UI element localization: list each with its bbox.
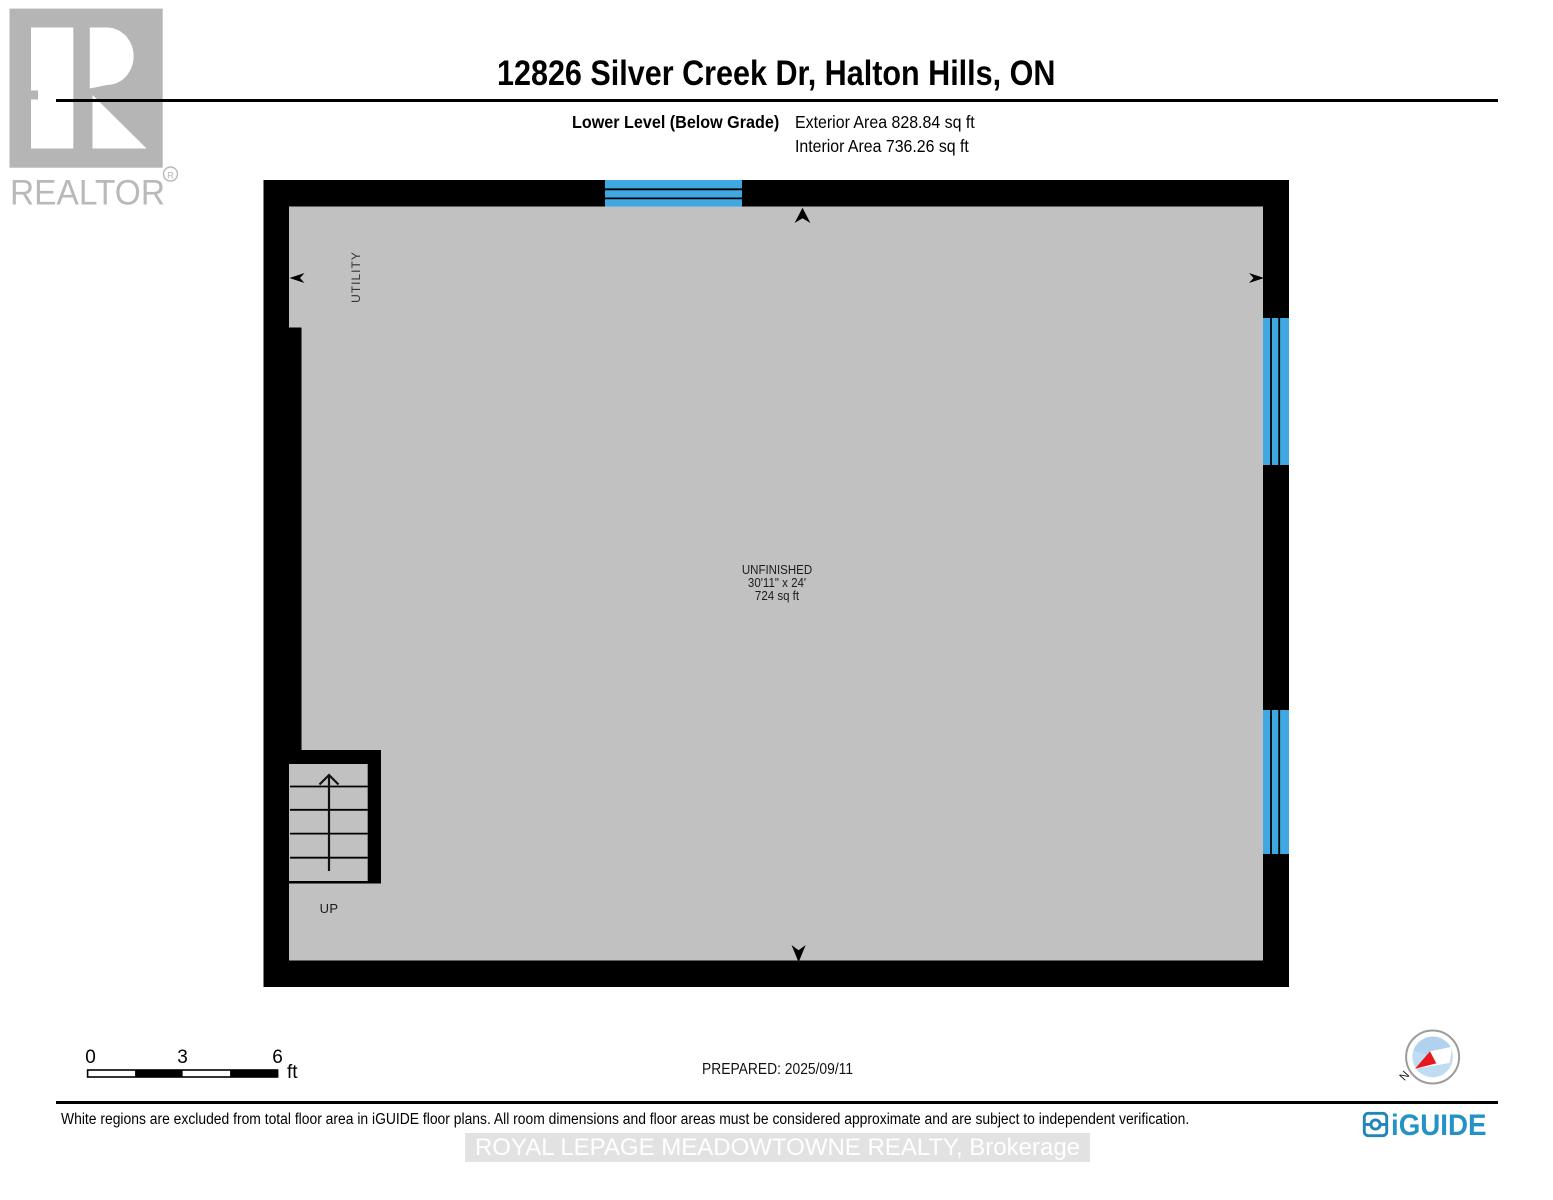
svg-text:ft: ft <box>287 1062 298 1083</box>
svg-text:3: 3 <box>177 1047 188 1068</box>
svg-text:6: 6 <box>272 1047 283 1068</box>
svg-text:iGUIDE: iGUIDE <box>1391 1109 1487 1142</box>
svg-text:0: 0 <box>85 1047 96 1068</box>
